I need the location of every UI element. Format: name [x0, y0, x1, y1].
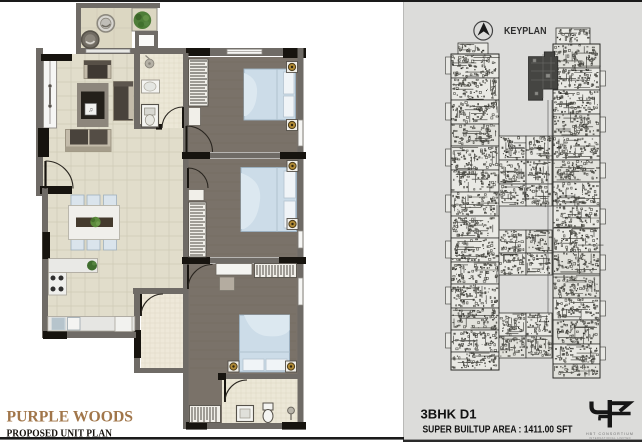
svg-text:SUPER BUILTUP AREA : 1411.00 S: SUPER BUILTUP AREA : 1411.00 SFT [423, 424, 573, 435]
svg-text:PURPLE WOODS: PURPLE WOODS [7, 409, 134, 426]
svg-text:KEYPLAN: KEYPLAN [504, 26, 547, 37]
svg-text:3BHK D1: 3BHK D1 [421, 407, 477, 421]
svg-text:HBT CONSORTIUM: HBT CONSORTIUM [586, 432, 634, 436]
svg-text:INTERNATIONAL LIMITED: INTERNATIONAL LIMITED [589, 436, 631, 440]
svg-text:PROPOSED UNIT PLAN: PROPOSED UNIT PLAN [7, 428, 113, 440]
svg-text:♫: ♫ [88, 108, 93, 114]
